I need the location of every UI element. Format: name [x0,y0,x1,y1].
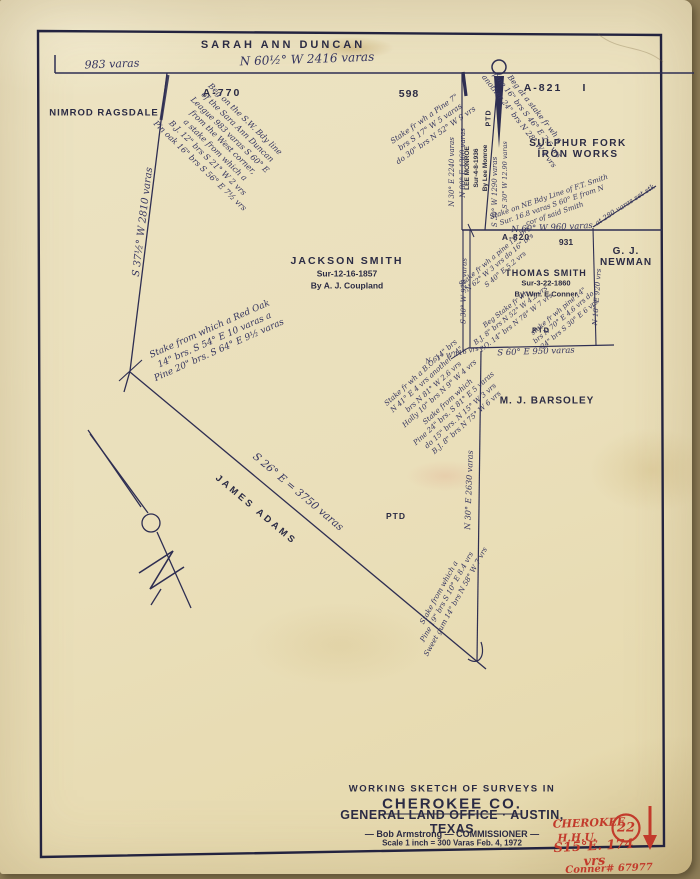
label-sarah-ann-duncan: SARAH ANN DUNCAN [201,39,365,51]
paper-crease [598,34,663,62]
scanned-survey-sketch: SARAH ANN DUNCAN NIMROD RAGSDALE A-770 5… [0,0,700,879]
label-ptd-center: PTD [386,511,406,521]
label-nimrod-ragsdale: NIMROD RAGSDALE [49,108,158,119]
label-thomas-smith: THOMAS SMITH [505,268,587,278]
title-commissioner: — Bob Armstrong — COMMISSIONER — [365,829,539,839]
title-working-sketch: WORKING SKETCH OF SURVEYS IN [349,784,556,795]
corner-hook [468,642,483,661]
label-bearing-1290b: S 30° W 12.90 varas [501,141,509,208]
red-county-note: CHEROKEE [552,815,625,831]
label-lee-monroe-stamp: LEE MONROE Sur-4-8-1936 By Lee Monroe [464,145,490,192]
label-931: 931 [559,237,573,247]
label-gj-newman: G. J. NEWMAN [589,246,663,268]
label-mj-barsoley: M. J. BARSOLEY [500,396,595,407]
label-983-varas: 983 varas [84,57,139,72]
title-scale-date: Scale 1 inch = 300 Varas Feb. 4, 1972 [382,839,522,848]
north-arrow-icon [88,430,191,608]
label-roman-one: I [583,82,586,94]
label-ptd-strip: PTD [486,110,493,127]
label-jackson-smith: JACKSON SMITH [291,255,404,267]
red-sketch-number: 22 [617,821,635,836]
label-abstract-821: A-821 [524,82,563,94]
survey-linework [0,0,700,879]
label-bearing-1360: N 80° E 1360 varas [459,128,467,198]
label-jackson-smith-survey: Sur-12-16-1857 By A. J. Coupland [311,268,383,293]
label-598: 598 [399,88,420,100]
label-bearing-2240: N 30° E 2240 varas [448,137,456,207]
